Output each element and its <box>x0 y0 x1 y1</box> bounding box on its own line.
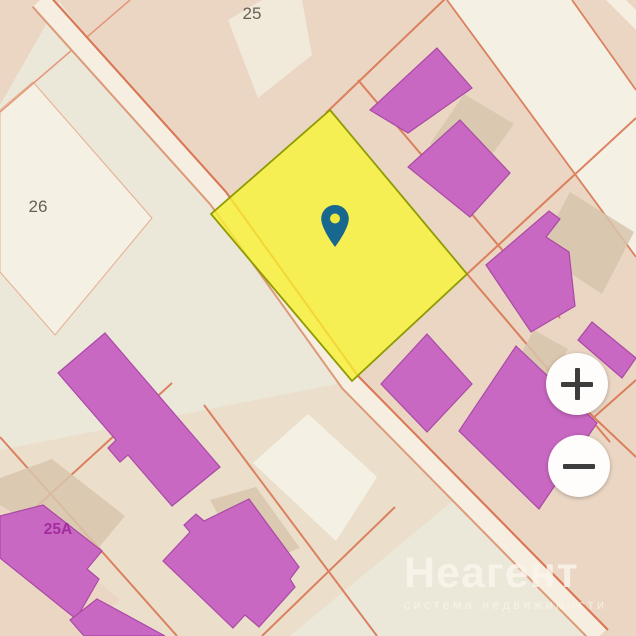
parcel-label-26: 26 <box>29 197 48 216</box>
parcel-label-25: 25 <box>243 4 262 23</box>
pin-hole <box>330 214 340 224</box>
map-viewport[interactable]: 25 26 25A <box>0 0 636 636</box>
parcel-label-25a: 25A <box>44 521 72 538</box>
zoom-out-button[interactable] <box>548 435 610 497</box>
plus-icon <box>575 368 580 400</box>
zoom-in-button[interactable] <box>546 353 608 415</box>
minus-icon <box>563 464 595 469</box>
map-canvas[interactable]: 25 26 25A <box>0 0 636 636</box>
